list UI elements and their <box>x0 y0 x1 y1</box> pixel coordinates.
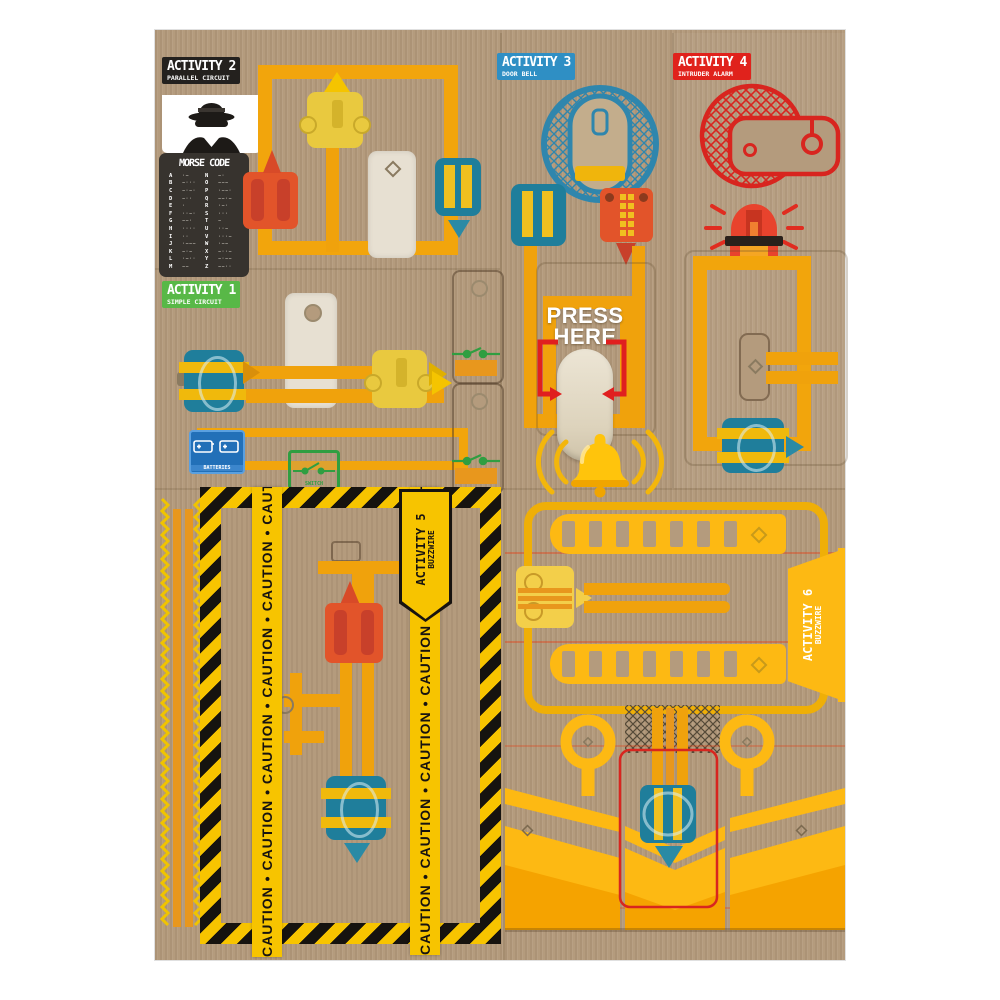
handle-panel-graphic <box>505 700 845 935</box>
battery-cell <box>334 610 347 654</box>
hole-icon <box>471 280 488 297</box>
morse-code: −− <box>182 264 202 270</box>
wire <box>766 371 838 384</box>
motor-module <box>326 776 386 840</box>
morse-letter: I <box>169 234 179 240</box>
morse-code: −··· <box>182 180 202 186</box>
activity6-subtitle: BUZZWIRE <box>815 606 824 645</box>
hole-icon <box>751 527 768 544</box>
activity3-subtitle: DOOR BELL <box>502 71 570 78</box>
buzzer-module <box>435 158 481 216</box>
morse-code: −−· <box>182 218 202 224</box>
module-stripe <box>542 191 553 237</box>
morse-letter: G <box>169 218 179 224</box>
latch-lock-icon <box>686 80 844 192</box>
morse-code: ···· <box>182 226 202 232</box>
module-oval <box>340 782 378 838</box>
module-oval <box>737 424 776 473</box>
morse-code: · <box>182 203 202 209</box>
caution-tape: CAUTION • CAUTION • CAUTION • CAUTION • … <box>252 487 282 957</box>
hole-icon <box>748 359 764 375</box>
module-stripe <box>444 165 455 208</box>
bell-icon <box>536 424 664 502</box>
activity1-label: ACTIVITY 1 SIMPLE CIRCUIT <box>162 281 240 308</box>
spy-icon <box>162 95 261 153</box>
morse-code: ··−· <box>182 211 202 217</box>
edge-strip <box>838 548 845 702</box>
morse-row: F··−· S··· <box>163 210 245 218</box>
morse-code-chart: MORSE CODE A·− N−· B−··· O−−− C−·−· P·−−… <box>159 153 249 277</box>
morse-letter: Z <box>205 264 215 270</box>
motor-module <box>184 350 244 412</box>
morse-letter: K <box>169 249 179 255</box>
morse-row: L·−·· Y−·−− <box>163 256 245 264</box>
activity3-label: ACTIVITY 3 DOOR BELL <box>497 53 575 80</box>
morse-letter: U <box>205 226 215 232</box>
activity2-label: ACTIVITY 2 PARALLEL CIRCUIT <box>162 57 240 84</box>
morse-row: H···· U··− <box>163 225 245 233</box>
bulb-holder-module <box>600 188 653 242</box>
switch-icon <box>291 457 337 479</box>
morse-code: −· <box>218 173 238 179</box>
wire <box>584 583 730 595</box>
battery-cell <box>277 179 290 221</box>
morse-code: ··· <box>218 211 238 217</box>
morse-code: −−·· <box>218 264 238 270</box>
press-line1: PRESS <box>540 305 630 326</box>
morse-code: ·− <box>182 173 202 179</box>
comb-strip-top <box>550 514 786 554</box>
morse-code: ·−−− <box>182 241 202 247</box>
press-brackets <box>534 338 630 410</box>
module-slot <box>332 100 343 128</box>
hole-icon <box>304 304 322 322</box>
wire <box>584 601 730 613</box>
batteries-label: BATTERIES <box>191 465 243 471</box>
screw-icon <box>639 193 648 202</box>
morse-letter: S <box>205 211 215 217</box>
morse-code: ··− <box>218 226 238 232</box>
morse-title: MORSE CODE <box>163 158 246 169</box>
switch-icon <box>452 345 500 361</box>
screw-icon <box>299 116 317 134</box>
module-stripe <box>522 191 533 237</box>
morse-code: ·−·· <box>182 256 202 262</box>
activity1-title: ACTIVITY 1 <box>167 284 235 297</box>
morse-letter: B <box>169 180 179 186</box>
wire <box>326 140 339 252</box>
hole-icon <box>385 161 402 178</box>
battery-pack-module <box>243 172 298 229</box>
morse-code: ·−−· <box>218 188 238 194</box>
product-photo: ACTIVITY 2 PARALLEL CIRCUIT MORSE CODE A… <box>0 0 1000 1000</box>
morse-row: A·− N−· <box>163 172 245 180</box>
bell-illustration <box>536 424 664 502</box>
tab-pull-bar <box>455 360 497 376</box>
morse-code: −·−· <box>182 188 202 194</box>
morse-letter: T <box>205 218 215 224</box>
morse-letter: F <box>169 211 179 217</box>
activity2-title: ACTIVITY 2 <box>167 60 235 73</box>
morse-code: − <box>218 218 238 224</box>
activity6-tag: ACTIVITY 6 BUZZWIRE <box>788 551 838 699</box>
morse-letter: N <box>205 173 215 179</box>
module-slot <box>396 358 407 387</box>
morse-code: ·· <box>182 234 202 240</box>
module-stripe <box>628 194 634 236</box>
hole-icon <box>751 657 768 674</box>
latch-illustration <box>686 80 844 192</box>
morse-letter: H <box>169 226 179 232</box>
morse-row: C−·−· P·−−· <box>163 187 245 195</box>
battery-icon <box>191 436 243 458</box>
comb-strip-bottom <box>550 644 786 684</box>
motor-module <box>722 418 784 473</box>
morse-letter: A <box>169 173 179 179</box>
morse-row: G−−· T− <box>163 218 245 226</box>
morse-code: ···− <box>218 234 238 240</box>
activity5-tag: ACTIVITY 5 BUZZWIRE <box>399 489 452 622</box>
morse-code: −·−− <box>218 256 238 262</box>
morse-letter: Y <box>205 256 215 262</box>
buzzer-module <box>325 603 383 663</box>
morse-code: −−− <box>218 180 238 186</box>
activity5-title: ACTIVITY 5 <box>415 513 428 585</box>
morse-letter: P <box>205 188 215 194</box>
activity2-subtitle: PARALLEL CIRCUIT <box>167 75 235 82</box>
zigzag-strip-icon <box>158 497 205 939</box>
bulb-module <box>372 350 427 408</box>
morse-row: M−− Z−−·· <box>163 263 245 271</box>
morse-code: −·− <box>182 249 202 255</box>
red-bracket-icon <box>534 338 630 410</box>
blank-die-cut-tag <box>368 151 416 258</box>
activity4-subtitle: INTRUDER ALARM <box>678 71 746 78</box>
morse-code: −··− <box>218 249 238 255</box>
activity4-title: ACTIVITY 4 <box>678 56 746 69</box>
zigzag-edge-strip <box>158 497 205 939</box>
morse-row: D−·· Q−−·− <box>163 195 245 203</box>
morse-row: I·· V···− <box>163 233 245 241</box>
wire <box>766 352 838 365</box>
wire <box>340 660 352 782</box>
wire <box>284 731 324 743</box>
morse-letter: R <box>205 203 215 209</box>
switch-icon <box>452 452 500 468</box>
module-stripe <box>461 165 472 208</box>
morse-letter: M <box>169 264 179 270</box>
activity3-title: ACTIVITY 3 <box>502 56 570 69</box>
activity1-subtitle: SIMPLE CIRCUIT <box>167 299 235 306</box>
battery-cell <box>361 610 374 654</box>
buzzer-module <box>511 184 566 246</box>
module-stripe <box>620 194 626 236</box>
buzzwire-handle-panel <box>505 700 845 935</box>
morse-code: ·−· <box>218 203 238 209</box>
tab-pull-bar <box>455 468 497 484</box>
morse-row: E· R·−· <box>163 202 245 210</box>
connector-pad <box>516 566 574 628</box>
morse-letter: Q <box>205 196 215 202</box>
morse-letter: C <box>169 188 179 194</box>
morse-letter: J <box>169 241 179 247</box>
screw-icon <box>353 116 371 134</box>
morse-letter: L <box>169 256 179 262</box>
morse-letter: D <box>169 196 179 202</box>
morse-code: −·· <box>182 196 202 202</box>
switch-box: SWITCH <box>288 450 340 490</box>
morse-code: −−·− <box>218 196 238 202</box>
die-cut-slot <box>331 541 361 562</box>
activity4-label: ACTIVITY 4 INTRUDER ALARM <box>673 53 751 80</box>
morse-letter: X <box>205 249 215 255</box>
screw-icon <box>364 374 382 392</box>
wire <box>246 366 372 379</box>
morse-letter: V <box>205 234 215 240</box>
panel-seam <box>672 33 674 488</box>
battery-cell <box>251 179 264 221</box>
morse-row: J·−−− W·−− <box>163 240 245 248</box>
die-cut-slot <box>739 333 770 401</box>
hole-icon <box>471 393 488 410</box>
morse-row: K−·− X−··− <box>163 248 245 256</box>
morse-letter: O <box>205 180 215 186</box>
morse-code: ·−− <box>218 241 238 247</box>
module-oval <box>198 356 236 410</box>
activity5-subtitle: BUZZWIRE <box>428 530 437 569</box>
spy-card <box>162 95 261 153</box>
morse-table: A·− N−· B−··· O−−− C−·−· P·−−· D−·· Q−−·… <box>163 172 245 271</box>
morse-row: B−··· O−−− <box>163 180 245 188</box>
switch-module <box>307 92 363 148</box>
batteries-box: BATTERIES <box>189 430 245 474</box>
morse-letter: E <box>169 203 179 209</box>
screw-icon <box>605 193 614 202</box>
morse-letter: W <box>205 241 215 247</box>
